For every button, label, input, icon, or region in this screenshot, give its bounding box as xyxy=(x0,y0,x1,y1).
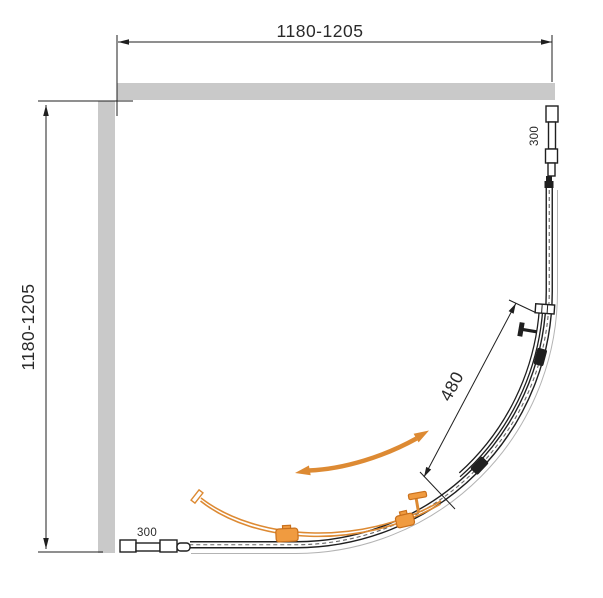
arrowhead-top xyxy=(43,105,49,116)
technical-drawing-canvas: 1180-1205 1180-1205 xyxy=(0,0,603,598)
rail-inner xyxy=(190,188,546,542)
arrowhead-bottom xyxy=(43,538,49,549)
dimension-left: 1180-1205 xyxy=(18,101,133,552)
open-door-handle-knob xyxy=(408,491,427,500)
outer-glass-silhouette-arc xyxy=(191,190,558,554)
door-end-cap xyxy=(535,304,555,314)
slide-direction-arrow xyxy=(295,431,429,476)
profile-bracket xyxy=(160,540,177,552)
dimension-top-label: 1180-1205 xyxy=(277,21,364,41)
dimension-top: 1180-1205 xyxy=(117,21,552,116)
open-door-roller-left xyxy=(275,525,298,542)
profile-clip xyxy=(546,176,552,181)
arrowhead-bottom xyxy=(424,467,431,477)
arrowhead-left xyxy=(118,39,129,45)
door-closed-position xyxy=(459,304,554,477)
profile-body xyxy=(548,163,555,176)
open-door-handle-stem xyxy=(416,498,419,513)
track-centerline-dashed xyxy=(190,190,549,545)
arrowhead-left xyxy=(295,466,311,476)
door-roller-top xyxy=(533,347,547,366)
profile-cap xyxy=(546,106,558,122)
door-handle-knob xyxy=(520,323,522,337)
door-glass-edge xyxy=(460,309,543,477)
dimension-door-label: 480 xyxy=(436,368,468,404)
walls xyxy=(98,83,555,553)
profile-end xyxy=(177,543,190,551)
wall-top xyxy=(117,83,555,100)
shower-enclosure-plan-svg: 1180-1205 1180-1205 xyxy=(0,0,603,598)
wall-profile-bottom-left: 300 xyxy=(120,527,190,552)
profile-bracket xyxy=(546,149,558,163)
fixed-segment-bottom-label: 300 xyxy=(137,527,157,539)
arrowhead-top xyxy=(509,304,516,314)
fixed-segment-right-label: 300 xyxy=(529,126,541,146)
wall-left xyxy=(98,101,115,553)
arrowhead-right xyxy=(541,39,552,45)
door-open-position xyxy=(191,490,441,542)
open-door-roller-right xyxy=(394,509,415,528)
arrow-body xyxy=(309,439,417,471)
profile-body xyxy=(549,122,556,149)
profile-body xyxy=(136,543,160,551)
profile-cap xyxy=(120,540,136,552)
track-rails xyxy=(190,181,554,548)
wall-profile-top-right: 300 xyxy=(529,106,558,181)
glass-clamp-top xyxy=(545,181,554,188)
rail-outer xyxy=(190,188,552,548)
dimension-left-label: 1180-1205 xyxy=(18,284,38,371)
